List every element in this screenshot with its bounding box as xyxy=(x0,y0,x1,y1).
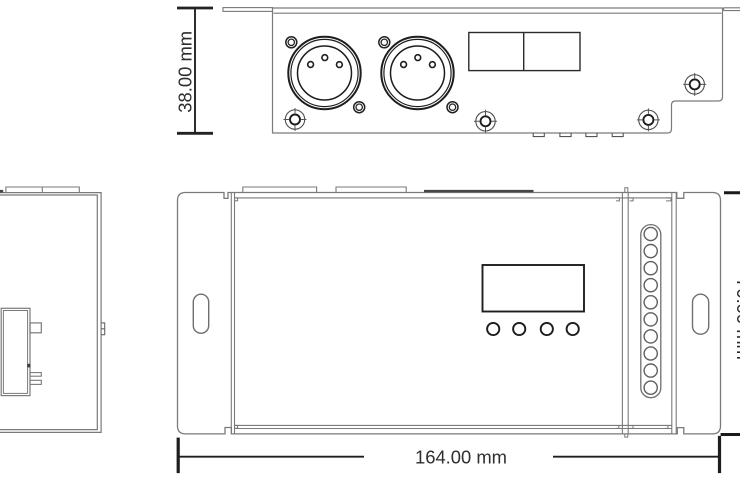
svg-text:70.00 mm: 70.00 mm xyxy=(733,278,740,360)
svg-text:38.00 mm: 38.00 mm xyxy=(174,31,195,113)
svg-text:164.00 mm: 164.00 mm xyxy=(415,446,507,467)
